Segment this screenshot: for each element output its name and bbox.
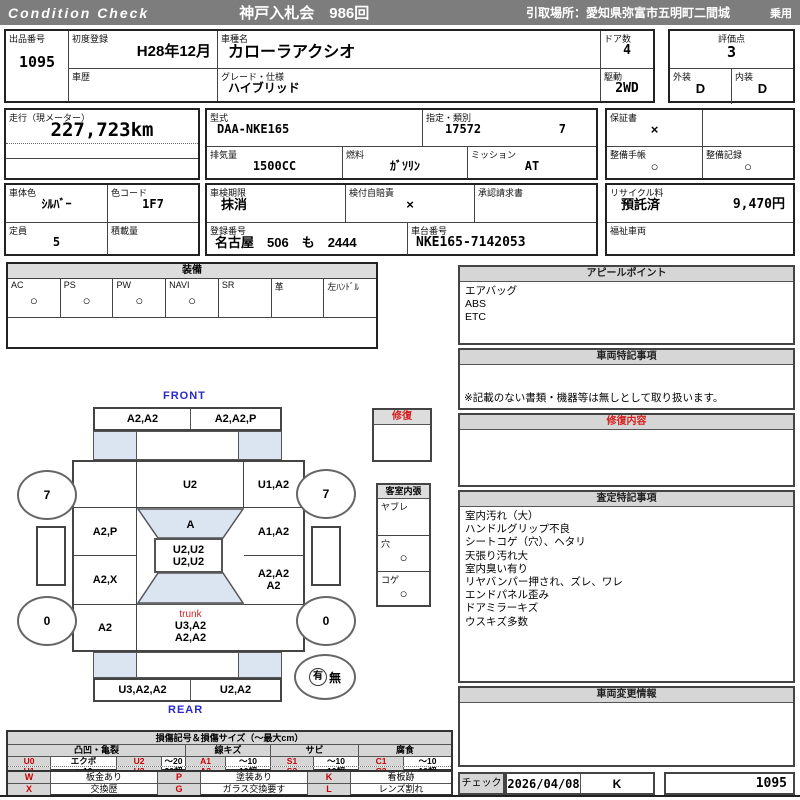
front-label: FRONT (163, 390, 206, 402)
damage-size: ～20 (162, 757, 186, 766)
capacity-value: 5 (6, 235, 107, 249)
maintenance-record-label: 整備記録 (706, 148, 742, 161)
warranty-empty-cell (702, 110, 793, 146)
recycle-status: 預託済 (621, 197, 660, 213)
damage-size: ～10 (314, 757, 359, 766)
equipment-item-value: ○ (61, 293, 113, 308)
front-bumper-right-cell: A2,A2,P (191, 409, 280, 429)
mission-value: AT (468, 159, 596, 173)
front-right-tread: 7 (296, 469, 356, 519)
text-line: エアバッグ (465, 285, 788, 298)
text-line: 天張り汚れ大 (465, 550, 788, 563)
inspection-value: 抹消 (207, 197, 345, 213)
color-table: 車体色 ｼﾙﾊﾞｰ 色コード 1F7 定員 5 積載量 (4, 183, 200, 256)
mark-code: K (308, 772, 351, 783)
equipment-item-sr: SR (218, 279, 271, 317)
grade-cell: グレード・仕様 ハイブリッド (217, 68, 600, 101)
class-sub-number: 7 (559, 122, 566, 136)
damage-size: ～10 (404, 757, 451, 766)
equipment-item-ps: PS○ (60, 279, 113, 317)
load-label: 積載量 (111, 224, 138, 237)
left-quarter-cell: A2 (74, 605, 137, 650)
fuel-cell: 燃料 ｶﾞｿﾘﾝ (342, 147, 467, 179)
fuel-value: ｶﾞｿﾘﾝ (343, 159, 467, 173)
mark-label: ガラス交換要す (201, 784, 308, 795)
appeal-panel: アピールポイント エアバッグABSETC (458, 265, 795, 345)
damage-legend-groups: 凸凹・亀裂線キズサビ腐食 (8, 745, 451, 757)
mileage-box: 走行（現メーター） 227,723km (4, 108, 200, 180)
equipment-item-label: PW (116, 280, 131, 290)
equipment-item-label: AC (11, 280, 24, 290)
history-label: 車歴 (72, 70, 90, 83)
exterior-grade-cell: 外装 D (670, 69, 731, 104)
equipment-item-navi: NAVI○ (165, 279, 218, 317)
score-label: 評価点 (670, 32, 793, 45)
registration-number-cell: 登録番号 名古屋 506 も 2444 (207, 223, 407, 255)
mark-legend-table: W板金ありP塗装ありK看板跡X交換歴Gガラス交換要すLレンズ割れ (6, 770, 453, 796)
maintenance-record-value: ○ (703, 159, 793, 175)
text-line: ドアミラーキズ (465, 602, 788, 615)
equipment-item-革: 革 (271, 279, 324, 317)
grade-label: グレード・仕様 (221, 70, 284, 83)
mark-label: 交換歴 (51, 784, 158, 795)
mission-cell: ミッション AT (467, 147, 596, 179)
check-box: 2026/04/08 K (505, 772, 655, 795)
first-registration-cell: 初度登録 H28年12月 (68, 31, 217, 68)
front-left-tread: 7 (17, 470, 77, 520)
interior-check-box: 客室内張 ヤブレ 穴 ○ コゲ ○ (376, 483, 431, 607)
check-label: チェック (458, 772, 505, 795)
header-bar: Condition Check 神戸入札会 986回 引取場所：愛知県弥富市五明… (0, 0, 800, 25)
damage-legend-title: 損傷記号＆損傷サイズ（～最大cm） (8, 732, 451, 745)
exterior-grade-value: D (670, 81, 731, 97)
mark-label: 板金あり (51, 772, 158, 783)
model-code-cell: 型式 DAA-NKE165 (207, 110, 422, 146)
mark-code: X (8, 784, 51, 795)
rear-corner-strip (93, 652, 282, 678)
equipment-item-label: SR (222, 280, 235, 290)
special-notes-panel: 車両特記事項 ※記載のない書類・機器等は無しとして取り扱います。 (458, 348, 795, 410)
registration-number-label: 登録番号 (210, 224, 246, 237)
maintenance-book-label: 整備手帳 (610, 148, 646, 161)
mark-label: 塗装あり (201, 772, 308, 783)
interior-grade-cell: 内装 D (731, 69, 793, 104)
model-code-label: 型式 (210, 111, 228, 124)
interior-grade-label: 内装 (735, 70, 753, 83)
mark-legend-rows: W板金ありP塗装ありK看板跡X交換歴Gガラス交換要すLレンズ割れ (8, 772, 451, 795)
equipment-row: AC○PS○PW○NAVI○SR革左ﾊﾝﾄﾞﾙ (8, 279, 376, 317)
damage-code: C1 (359, 757, 404, 766)
color-code-value: 1F7 (108, 197, 198, 211)
doors-cell: ドア数 4 (600, 31, 653, 68)
damage-code: A1 (186, 757, 226, 766)
drive-label: 駆動 (604, 70, 622, 83)
text-line: ウスキズ多数 (465, 616, 788, 629)
front-left-corner (94, 432, 137, 459)
recycle-label: リサイクル料 (610, 186, 664, 199)
capacity-label: 定員 (9, 224, 27, 237)
body-color-value: ｼﾙﾊﾞｰ (6, 197, 107, 211)
rear-window-shape (138, 573, 243, 603)
front-mid-strip (137, 432, 238, 459)
text-line: エンドパネル歪み (465, 589, 788, 602)
interior-grade-value: D (732, 81, 793, 97)
front-bumper-left-cell: A2,A2 (95, 409, 191, 429)
check-inspector: K (581, 774, 653, 793)
special-notes-title: 車両特記事項 (460, 350, 793, 365)
registration-table: 車検期限 抹消 検付自賠責 × 承認請求書 登録番号 名古屋 506 も 244… (205, 183, 598, 256)
chassis-number-value: NKE165-7142053 (408, 235, 596, 251)
interior-check-title: 客室内張 (378, 485, 429, 499)
front-left-fender-cell (74, 462, 137, 508)
burn-label: コゲ (381, 573, 399, 586)
spare-tire-mark: 有 無 (294, 654, 356, 700)
color-code-label: 色コード (111, 186, 147, 199)
rear-right-tread: 0 (296, 596, 356, 646)
lot-number-value: 1095 (6, 53, 68, 71)
doors-value: 4 (601, 43, 653, 59)
damage-code: U0 (8, 757, 51, 766)
interior-check-row: 穴 ○ (378, 535, 429, 571)
mileage-empty-row (6, 144, 198, 159)
repair-mark-title: 修復 (374, 410, 430, 425)
spare-have-circled: 有 (309, 668, 327, 686)
exterior-grade-label: 外装 (673, 70, 691, 83)
model-name-cell: 車種名 カローラアクシオ (217, 31, 600, 68)
registration-number-value: 名古屋 506 も 2444 (207, 235, 407, 251)
car-body-diagram: U2 U1,A2 A2,P A1,A2 A2,X A2,A2 A2 A2 A U… (72, 460, 305, 652)
lot-number-cell: 出品番号 1095 (6, 31, 68, 101)
mark-legend-row: W板金ありP塗装ありK看板跡 (8, 772, 451, 784)
approval-cell: 承認請求書 (474, 185, 596, 222)
welfare-cell: 福祉車両 (607, 222, 793, 254)
color-code-cell: 色コード 1F7 (107, 185, 198, 222)
score-cell: 評価点 3 (670, 31, 793, 68)
equipment-item-label: 左ﾊﾝﾄﾞﾙ (327, 280, 359, 293)
appeal-lines: エアバッグABSETC (460, 282, 793, 328)
class-cell: 指定・類別 17572 7 (422, 110, 596, 146)
class-label: 指定・類別 (426, 111, 471, 124)
maintenance-book-cell: 整備手帳 ○ (607, 147, 702, 179)
front-right-corner (238, 432, 281, 459)
drive-value: 2WD (601, 81, 653, 97)
inspection-label: 車検期限 (210, 186, 246, 199)
burn-value: ○ (378, 586, 429, 601)
interior-check-row: コゲ ○ (378, 571, 429, 607)
maintenance-book-value: ○ (607, 159, 702, 175)
left-rear-door-cell: A2,X (74, 556, 137, 605)
model-name-label: 車種名 (221, 32, 248, 45)
displacement-cell: 排気量 1500CC (207, 147, 342, 179)
vehicle-category: 乗用 (770, 5, 792, 21)
welfare-label: 福祉車両 (610, 224, 646, 237)
insurance-label: 検付自賠責 (349, 186, 394, 199)
equipment-table: 装備 AC○PS○PW○NAVI○SR革左ﾊﾝﾄﾞﾙ (6, 262, 378, 349)
pickup-location: 引取場所：愛知県弥富市五明町二間城 (526, 4, 730, 21)
damage-legend-row: U0エクボU2～20A1～10S1～10C1～10 (8, 757, 451, 767)
recycle-fee: 9,470円 (733, 197, 785, 213)
right-rear-door-cell: A2,A2 A2 (244, 556, 303, 605)
rear-left-corner (94, 653, 137, 677)
equipment-item-ac: AC○ (8, 279, 60, 317)
insurance-value: × (346, 197, 474, 213)
lot-number-label: 出品番号 (9, 32, 45, 45)
damage-group-header: サビ (271, 745, 359, 756)
trunk-cell: trunk U3,A2 A2,A2 (137, 605, 244, 650)
equipment-item-value: ○ (166, 293, 218, 308)
capacity-cell: 定員 5 (6, 223, 107, 255)
repair-content-title: 修復内容 (460, 415, 793, 430)
inspection-cell: 車検期限 抹消 (207, 185, 345, 222)
text-line: ハンドルグリップ不良 (465, 523, 788, 536)
approval-label: 承認請求書 (478, 186, 523, 199)
damage-code: S1 (271, 757, 314, 766)
recycle-cell: リサイクル料 預託済 9,470円 (607, 185, 793, 222)
right-quarter-cell (244, 605, 303, 650)
assessment-title: 査定特記事項 (460, 492, 793, 507)
assessment-lines: 室内汚れ（大）ハンドルグリップ不良シートコゲ（穴）、ヘタリ天張り汚れ大室内臭い有… (460, 507, 793, 632)
check-lot-number: 1095 (664, 772, 795, 795)
bottom-border (0, 795, 800, 797)
text-line: シートコゲ（穴）、ヘタリ (465, 536, 788, 549)
equipment-item-label: 革 (275, 280, 284, 293)
right-tire-box (311, 526, 341, 586)
damage-code: U2 (117, 757, 162, 766)
mark-label: レンズ割れ (351, 784, 451, 795)
mileage-label: 走行（現メーター） (9, 111, 90, 124)
damage-size: ～10 (226, 757, 271, 766)
model-code-value: DAA-NKE165 (207, 122, 422, 136)
recycle-table: リサイクル料 預託済 9,470円 福祉車両 (605, 183, 795, 256)
spec-table: 型式 DAA-NKE165 指定・類別 17572 7 排気量 1500CC 燃… (205, 108, 598, 180)
model-name-value: カローラアクシオ (218, 43, 600, 62)
rear-bumper-right-cell: U2,A2 (191, 680, 280, 700)
mission-label: ミッション (471, 148, 516, 161)
left-front-door-cell: A2,P (74, 508, 137, 556)
text-line: 室内汚れ（大） (465, 510, 788, 523)
chassis-number-cell: 車台番号 NKE165-7142053 (407, 223, 596, 255)
maintenance-record-cell: 整備記録 ○ (702, 147, 793, 179)
score-value: 3 (670, 43, 793, 61)
repair-mark-box: 修復 (372, 408, 432, 462)
body-color-label: 車体色 (9, 186, 36, 199)
chassis-number-label: 車台番号 (411, 224, 447, 237)
mark-code: L (308, 784, 351, 795)
front-right-fender-cell: U1,A2 (244, 462, 303, 508)
mark-code: G (158, 784, 201, 795)
first-registration-label: 初度登録 (72, 32, 108, 45)
class-number: 17572 (445, 122, 481, 136)
equipment-item-value: ○ (113, 293, 165, 308)
rear-left-tread: 0 (17, 596, 77, 646)
rear-right-corner (238, 653, 281, 677)
damage-group-header: 凸凹・亀裂 (8, 745, 186, 756)
rear-label: REAR (168, 704, 203, 716)
damage-legend-table: 損傷記号＆損傷サイズ（～最大cm） 凸凹・亀裂線キズサビ腐食 U0エクボU2～2… (6, 730, 453, 771)
mark-code: W (8, 772, 51, 783)
hole-value: ○ (378, 550, 429, 565)
damage-group-header: 線キズ (186, 745, 271, 756)
grade-value: ハイブリッド (218, 81, 600, 95)
warranty-cell: 保証書 × (607, 110, 702, 146)
trunk-label: trunk (179, 609, 201, 620)
mileage-empty-row2 (6, 159, 198, 177)
equipment-item-value: ○ (8, 293, 60, 308)
interior-check-row: ヤブレ (378, 499, 429, 535)
doors-label: ドア数 (604, 32, 631, 45)
condition-check-sheet: Condition Check 神戸入札会 986回 引取場所：愛知県弥富市五明… (0, 0, 800, 800)
auction-title: 神戸入札会 986回 (239, 2, 369, 23)
text-line: ETC (465, 311, 788, 324)
tear-label: ヤブレ (381, 500, 408, 513)
fuel-label: 燃料 (346, 148, 364, 161)
trunk-damage-codes: U3,A2 A2,A2 (175, 620, 206, 644)
check-date: 2026/04/08 (507, 774, 581, 793)
body-color-cell: 車体色 ｼﾙﾊﾞｰ (6, 185, 107, 222)
repair-content-panel: 修復内容 (458, 413, 795, 487)
assessment-panel: 査定特記事項 室内汚れ（大）ハンドルグリップ不良シートコゲ（穴）、ヘタリ天張り汚… (458, 490, 795, 683)
hood-cell: U2 (137, 462, 244, 508)
roof-cell: U2,U2 U2,U2 (154, 538, 223, 573)
damage-size: エクボ (51, 757, 117, 766)
equipment-item-pw: PW○ (112, 279, 165, 317)
change-info-title: 車両変更情報 (460, 688, 793, 703)
mileage-cell: 走行（現メーター） 227,723km (6, 110, 198, 144)
displacement-value: 1500CC (207, 159, 342, 173)
text-line: ABS (465, 298, 788, 311)
text-line: 室内臭い有り (465, 563, 788, 576)
rear-bumper-row: U3,A2,A2 U2,A2 (93, 678, 282, 702)
warranty-table: 保証書 × 整備手帳 ○ 整備記録 ○ (605, 108, 795, 180)
history-cell: 車歴 (68, 68, 217, 101)
front-corner-strip (93, 431, 282, 460)
equipment-item-label: NAVI (169, 280, 189, 290)
damage-group-header: 腐食 (359, 745, 451, 756)
first-registration-value: H28年12月 (69, 43, 217, 61)
drive-cell: 駆動 2WD (600, 68, 653, 101)
insurance-cell: 検付自賠責 × (345, 185, 474, 222)
equipment-item-label: PS (64, 280, 76, 290)
mark-legend-row: X交換歴Gガラス交換要すLレンズ割れ (8, 784, 451, 795)
mark-code: P (158, 772, 201, 783)
load-cell: 積載量 (107, 223, 198, 255)
text-line: リヤバンパー押され、ズレ、ワレ (465, 576, 788, 589)
front-bumper-row: A2,A2 A2,A2,P (93, 407, 282, 431)
rear-bumper-left-cell: U3,A2,A2 (95, 680, 191, 700)
left-tire-box (36, 526, 66, 586)
equipment-empty-row (8, 317, 376, 351)
equipment-item-左ﾊﾝﾄﾞﾙ: 左ﾊﾝﾄﾞﾙ (323, 279, 376, 317)
brand-logo: Condition Check (8, 5, 149, 21)
special-notes-disclaimer: ※記載のない書類・機器等は無しとして取り扱います。 (464, 390, 723, 405)
equipment-title: 装備 (8, 264, 376, 279)
vehicle-id-table: 出品番号 1095 初度登録 H28年12月 車種名 カローラアクシオ ドア数 … (4, 29, 655, 103)
change-info-panel: 車両変更情報 (458, 686, 795, 767)
rear-mid-strip (137, 653, 238, 677)
displacement-label: 排気量 (210, 148, 237, 161)
hole-label: 穴 (381, 537, 390, 550)
warranty-label: 保証書 (610, 111, 637, 124)
warranty-value: × (607, 122, 702, 138)
windshield-cell: A (137, 512, 244, 538)
score-table: 評価点 3 外装 D 内装 D (668, 29, 795, 103)
spare-none: 無 (329, 669, 341, 686)
appeal-title: アピールポイント (460, 267, 793, 282)
right-front-door-cell: A1,A2 (244, 508, 303, 556)
mark-label: 看板跡 (351, 772, 451, 783)
